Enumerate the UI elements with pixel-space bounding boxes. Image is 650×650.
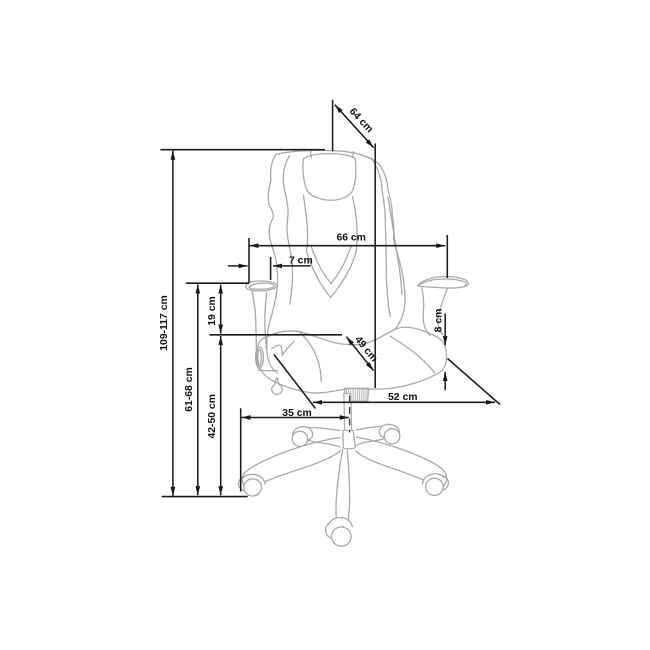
svg-text:42-50 cm: 42-50 cm — [207, 394, 218, 438]
svg-text:35 cm: 35 cm — [282, 408, 311, 419]
svg-text:61-68 cm: 61-68 cm — [184, 367, 195, 411]
svg-text:109-117 cm: 109-117 cm — [159, 295, 170, 350]
svg-text:8 cm: 8 cm — [434, 309, 445, 333]
svg-text:7 cm: 7 cm — [289, 255, 313, 266]
svg-text:52 cm: 52 cm — [388, 392, 417, 403]
svg-text:19 cm: 19 cm — [207, 296, 218, 325]
svg-text:66 cm: 66 cm — [336, 233, 365, 244]
svg-text:64 cm: 64 cm — [347, 106, 375, 135]
